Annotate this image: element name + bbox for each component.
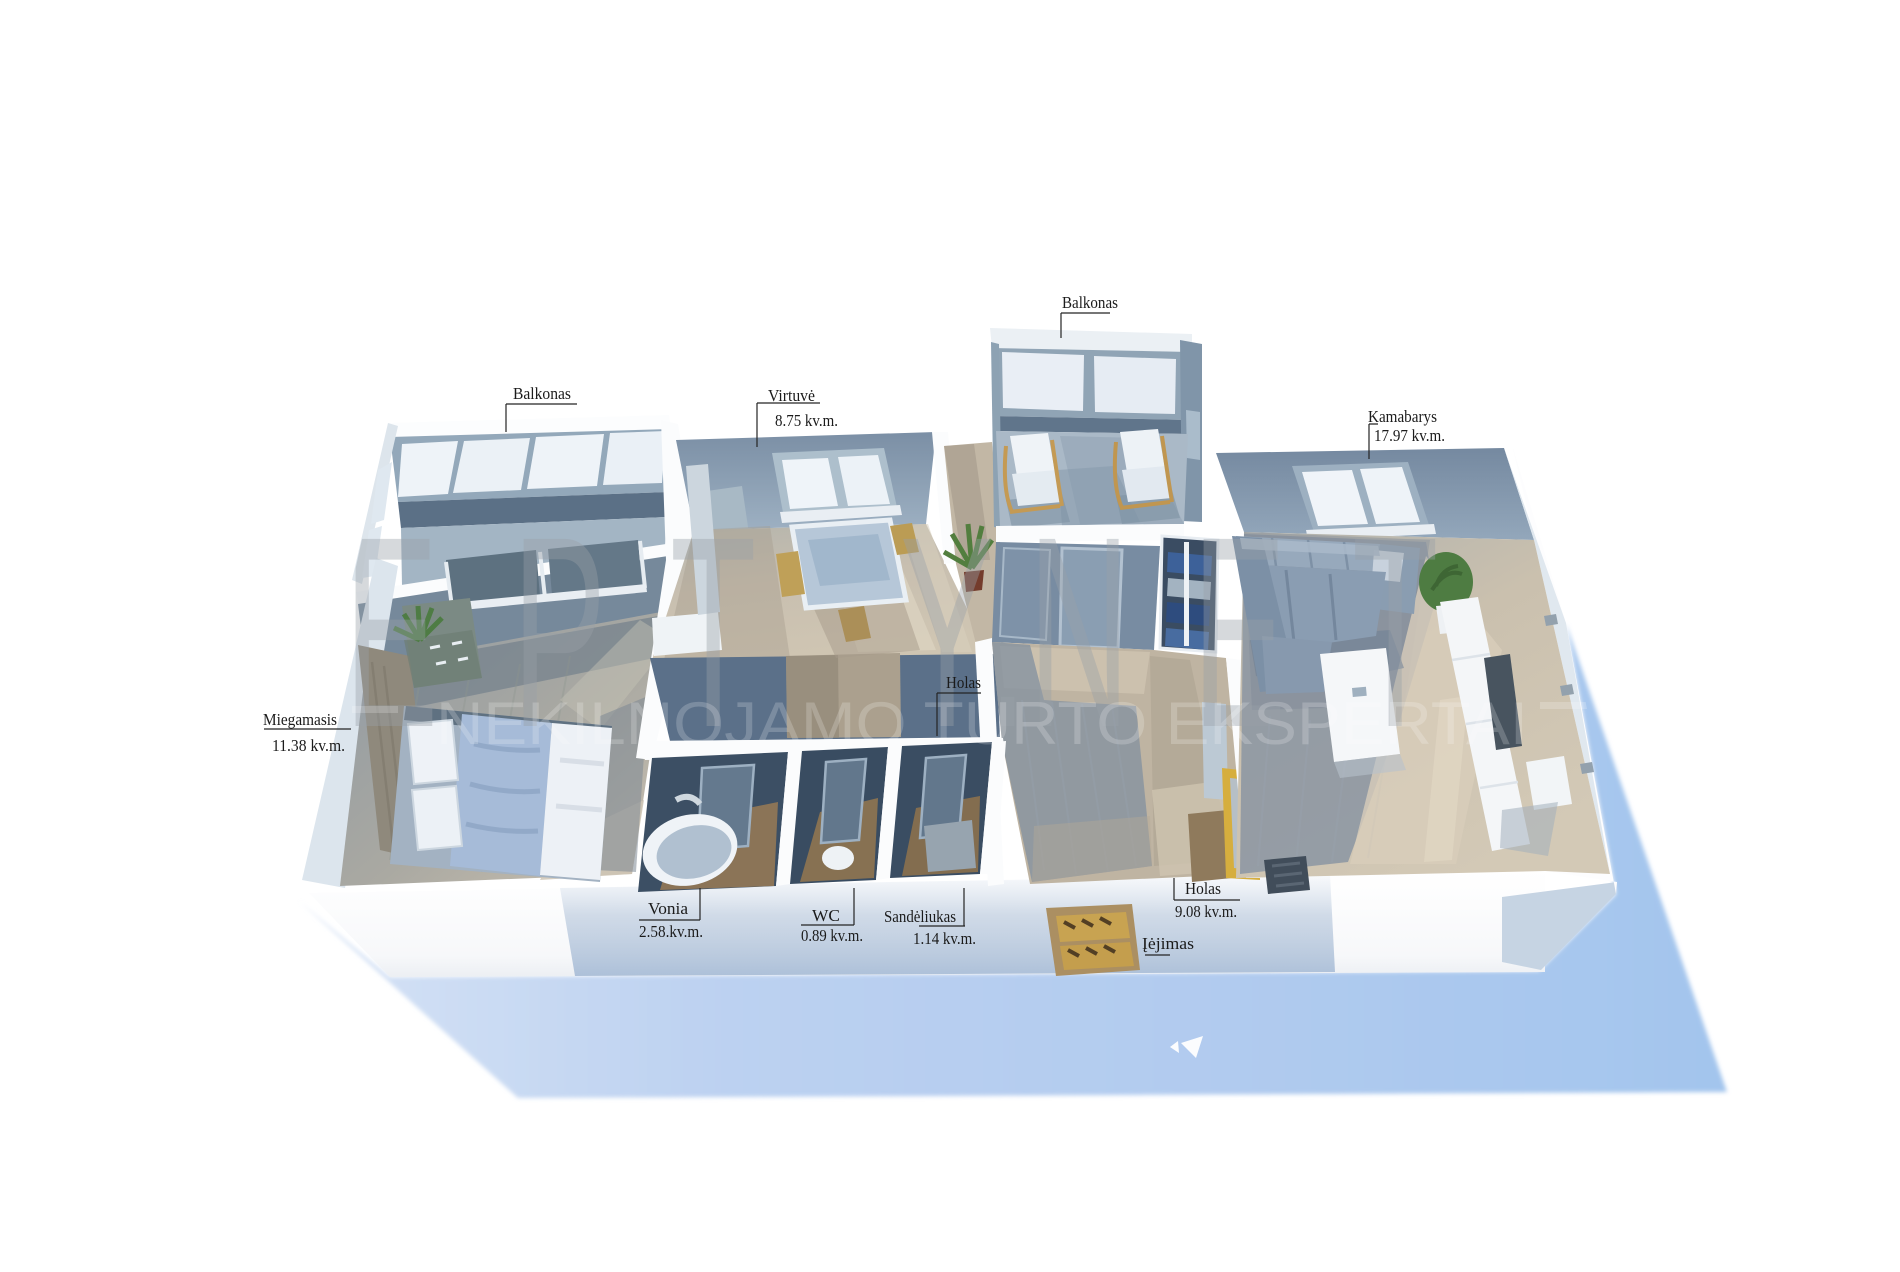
- svg-text:17.97 kv.m.: 17.97 kv.m.: [1374, 426, 1445, 445]
- svg-text:11.38 kv.m.: 11.38 kv.m.: [272, 736, 345, 755]
- svg-text:Holas: Holas: [946, 673, 981, 692]
- svg-text:Įėjimas: Įėjimas: [1142, 934, 1194, 953]
- svg-text:Miegamasis: Miegamasis: [263, 710, 337, 729]
- svg-text:NEKILNOJAMO TURTO EKSPERTAI: NEKILNOJAMO TURTO EKSPERTAI: [436, 690, 1528, 757]
- svg-text:0.89 kv.m.: 0.89 kv.m.: [801, 926, 863, 945]
- svg-text:2.58.kv.m.: 2.58.kv.m.: [639, 922, 703, 941]
- svg-text:9.08 kv.m.: 9.08 kv.m.: [1175, 902, 1237, 921]
- svg-text:WC: WC: [812, 906, 840, 925]
- svg-text:Virtuvė: Virtuvė: [768, 386, 815, 405]
- svg-text:Balkonas: Balkonas: [1062, 293, 1118, 312]
- svg-text:Balkonas: Balkonas: [513, 384, 571, 403]
- svg-text:1.14 kv.m.: 1.14 kv.m.: [913, 929, 976, 948]
- svg-text:Kamabarys: Kamabarys: [1368, 407, 1437, 426]
- svg-text:Holas: Holas: [1185, 879, 1221, 898]
- svg-text:Vonia: Vonia: [648, 899, 688, 918]
- svg-text:8.75 kv.m.: 8.75 kv.m.: [775, 411, 838, 430]
- svg-text:Sandėliukas: Sandėliukas: [884, 907, 956, 926]
